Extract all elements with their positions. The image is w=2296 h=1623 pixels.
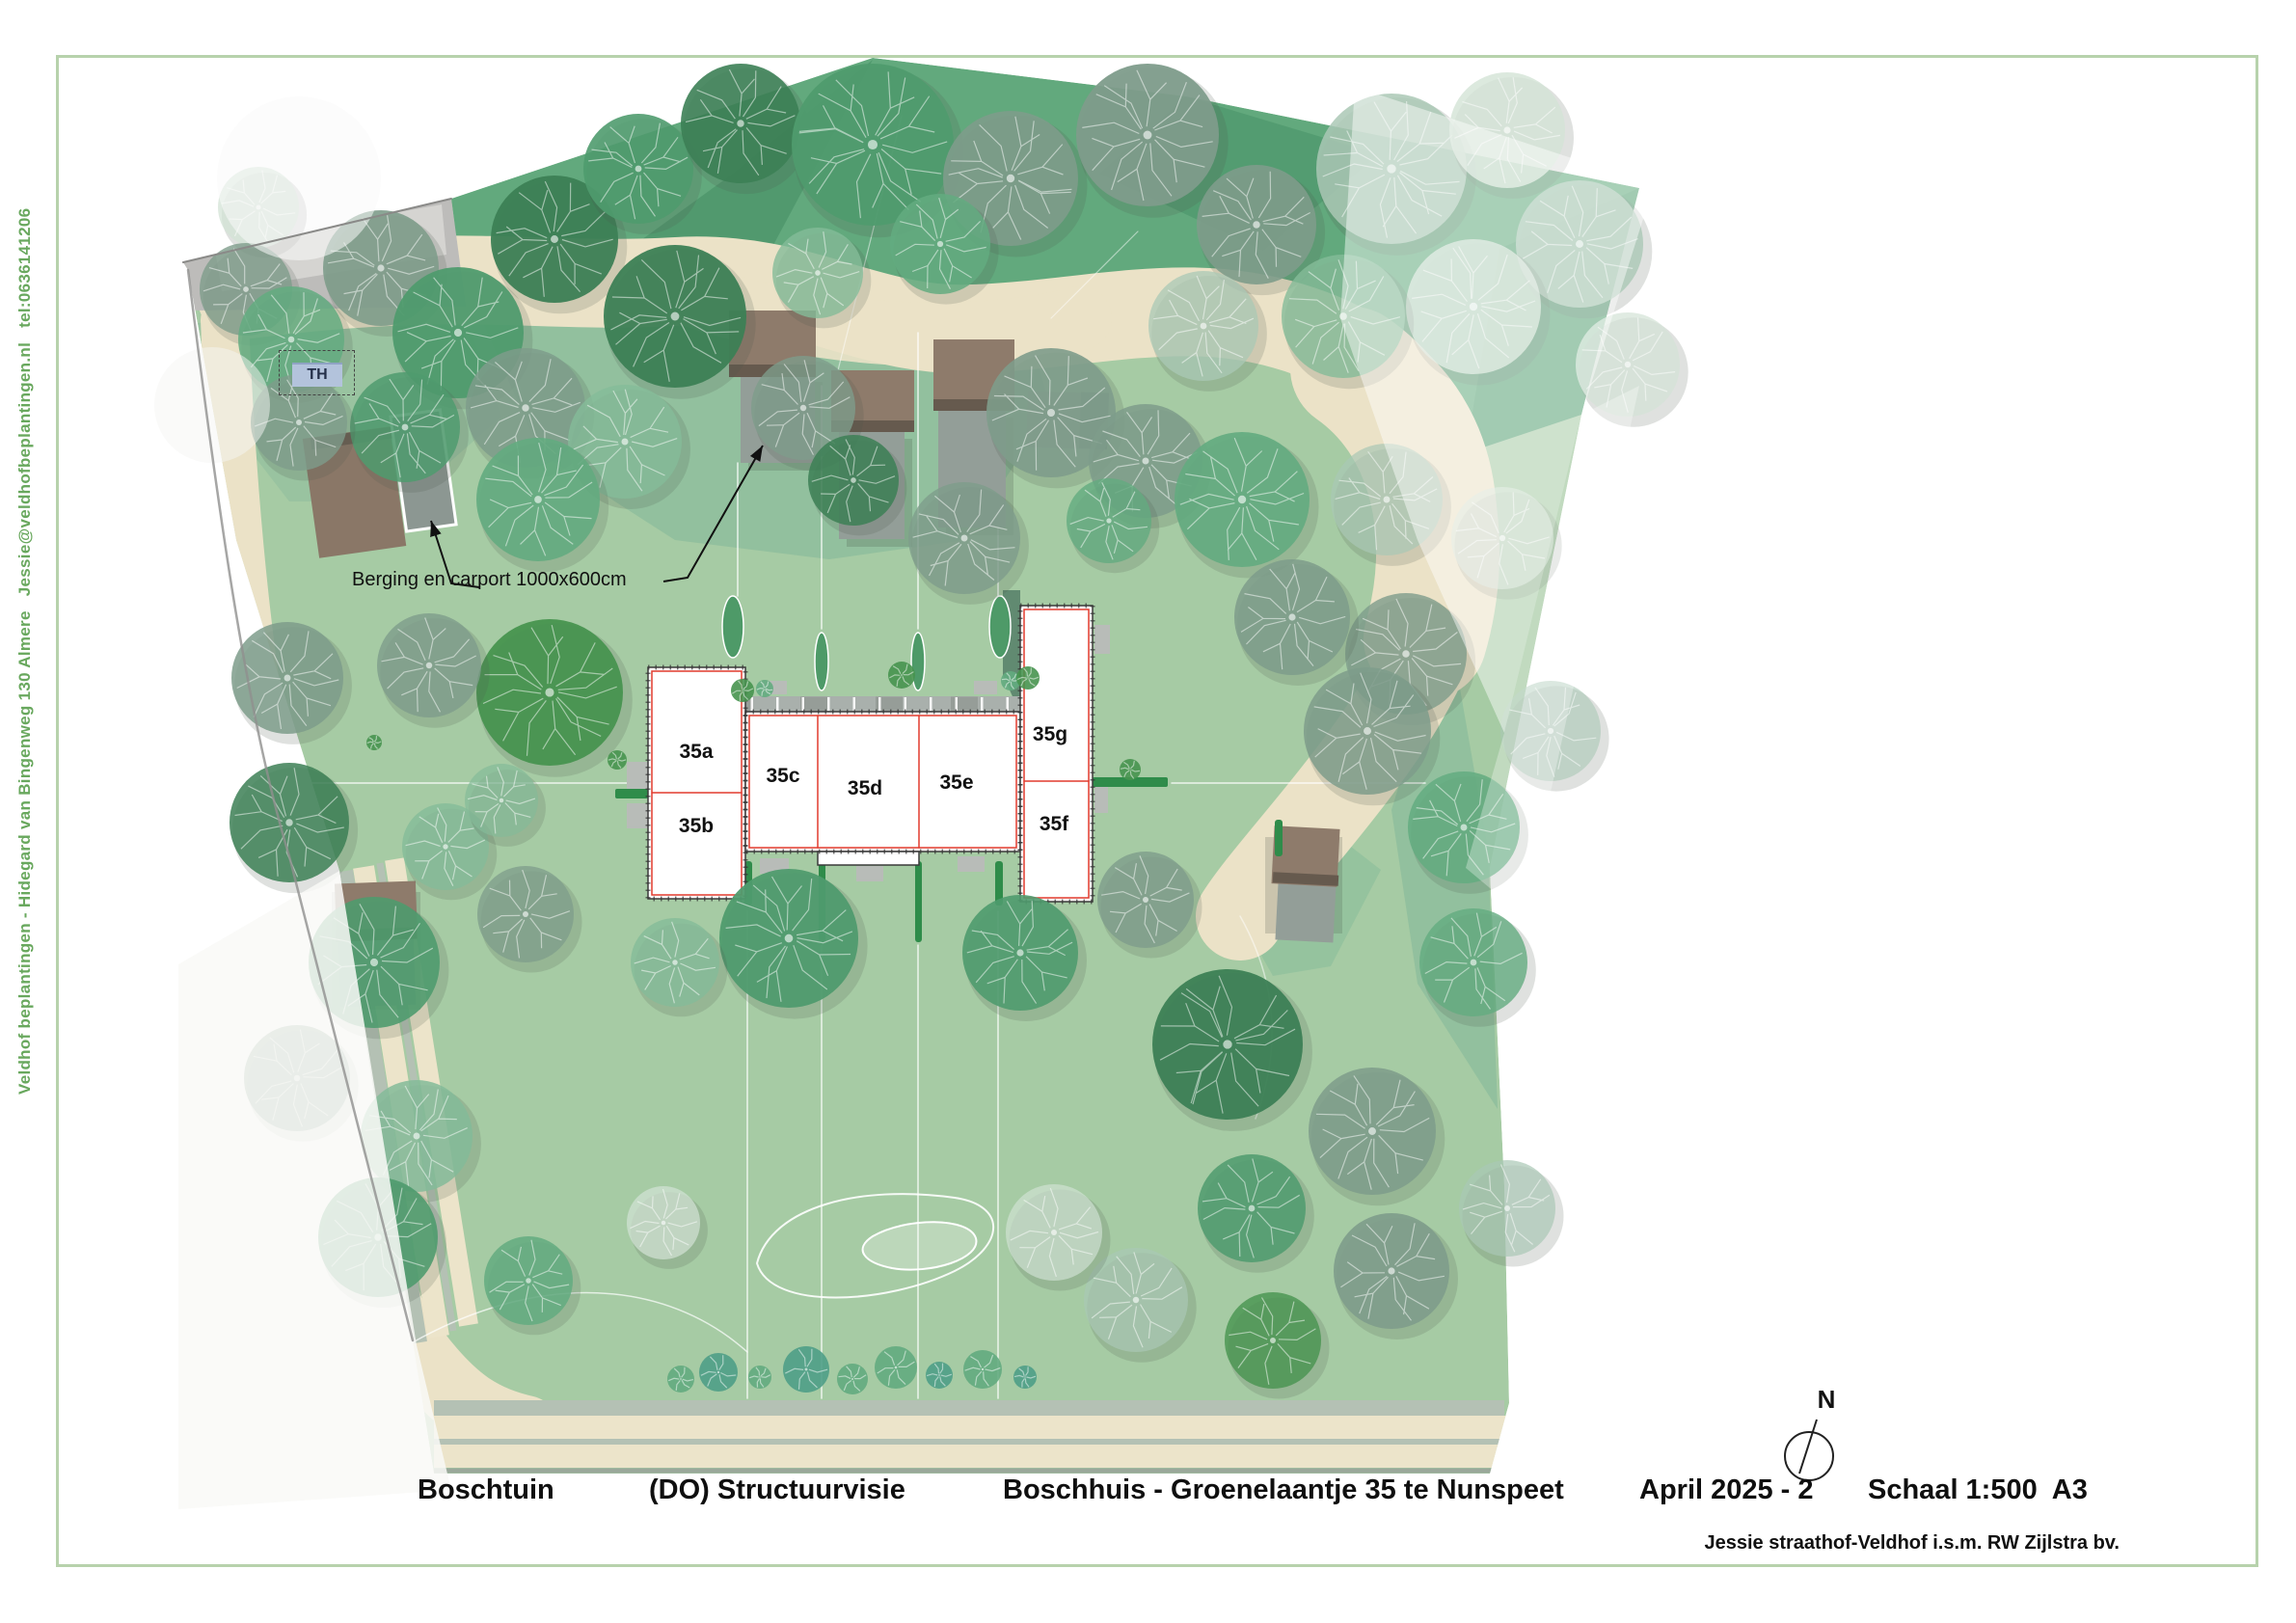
page-border-frame — [56, 55, 2258, 1567]
title-date: April 2025 - 2 — [1639, 1474, 1814, 1506]
unit-label-35c: 35c — [766, 765, 799, 788]
title-location: Boschhuis - Groenelaantje 35 te Nunspeet — [1003, 1474, 1564, 1506]
unit-label-35a: 35a — [679, 741, 713, 764]
title-phase: (DO) Structuurvisie — [649, 1474, 905, 1506]
compass-north-label: N — [1806, 1385, 1847, 1415]
berging-carport-annotation: Berging en carport 1000x600cm — [352, 569, 627, 591]
unit-label-35f: 35f — [1040, 813, 1068, 836]
unit-label-35b: 35b — [679, 815, 714, 838]
contact-sidebar-text: Veldhof beplantingen - Hidegard van Bing… — [15, 208, 35, 1095]
unit-label-35d: 35d — [848, 777, 882, 800]
unit-label-35e: 35e — [939, 771, 973, 795]
th-label: TH — [292, 363, 342, 387]
title-scale: Schaal 1:500 A3 — [1868, 1474, 2088, 1506]
credit-text: Jessie straathof-Veldhof i.s.m. RW Zijls… — [1664, 1532, 2120, 1555]
title-project: Boschtuin — [418, 1474, 554, 1506]
unit-label-35g: 35g — [1033, 723, 1067, 746]
